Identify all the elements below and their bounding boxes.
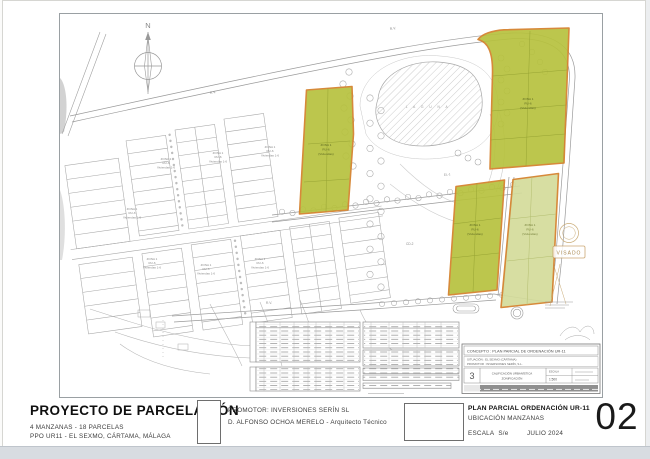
zona-label: ZONA 1RU-6Viviendas 1-6	[143, 257, 161, 269]
pond-label: L A G U N A	[406, 105, 450, 109]
scale-row: ESCALA S/e	[468, 430, 509, 437]
parcel2-label: ZONA 1	[522, 97, 533, 101]
inner-title-block: CONCEPTO : PLAN PARCIAL DE ORDENACIÓN UR…	[462, 326, 600, 393]
visado-label: VISADO	[557, 251, 582, 257]
itb-promotor: PROMOTOR : INVERSIONES SERÍN, S.L.	[467, 362, 523, 366]
parcel3-label: ZONA 1	[469, 223, 480, 227]
equipment-shapes	[453, 304, 479, 313]
zona-label: ZONA 1RU-6Viviendas 1-6	[197, 263, 215, 275]
page-edge-bottom	[0, 446, 650, 459]
north-compass: N	[135, 21, 162, 94]
scale-label: ESCALA	[468, 430, 494, 437]
rv-label-1: R.V.	[209, 90, 216, 95]
zona-label: ZONA 1RU-6Viviendas 1-6	[251, 257, 269, 269]
parcel4-label: ZONA 1	[524, 223, 535, 227]
rv-label-2: R.V.	[390, 26, 397, 31]
rv-label-3: R.V.	[266, 301, 273, 305]
itb-title2: ZONIFICACIÓN	[502, 376, 523, 381]
parcel-table-a	[250, 322, 360, 391]
sheet-number: 02	[591, 396, 643, 438]
zona-label: ZONA 1RU-6Viviendas 1-6	[209, 151, 227, 163]
scale-value: S/e	[498, 430, 508, 437]
zona-label: ZONA 1RU-6Viviendas 1-6	[261, 145, 279, 157]
parcel-table-b	[363, 322, 459, 394]
project-subtitle-2: PPO UR11 - EL SEXMO, CÁRTAMA, MÁLAGA	[30, 433, 171, 440]
map-frame: L A G U N A ZONA 1RU-6(Viviendas) ZONA 1…	[59, 13, 603, 398]
left-edge-terrain	[60, 32, 106, 260]
itb-plano-num: 3	[469, 371, 474, 381]
parcel1-label: ZONA 1	[320, 143, 331, 147]
itb-situacion: SITUACIÓN : EL SEXMO (CÁRTAMA)	[467, 356, 516, 361]
el-label: EL-1	[444, 172, 451, 177]
logo-box-right	[404, 403, 464, 441]
drawing-subtitle: UBICACIÓN MANZANAS	[468, 415, 544, 422]
itb-title1: CALIFICACIÓN URBANÍSTICA	[492, 371, 533, 376]
drawing-title: PLAN PARCIAL ORDENACIÓN UR-11	[468, 405, 590, 412]
promoter-line-2: D. ALFONSO OCHOA MERELO - Arquitecto Téc…	[228, 419, 387, 426]
zona-label: ZONA 1RU-6Viviendas 1-6	[123, 207, 141, 219]
parcel-plan-drawing: L A G U N A ZONA 1RU-6(Viviendas) ZONA 1…	[60, 14, 602, 397]
pond-water	[376, 62, 482, 146]
logo-box-left	[197, 400, 221, 444]
promoter-line-1: PROMOTOR: INVERSIONES SERÍN SL	[228, 407, 349, 414]
drawing-date: JULIO 2024	[527, 430, 563, 437]
cd-label: CD-2	[406, 242, 414, 246]
itb-concepto: CONCEPTO : PLAN PARCIAL DE ORDENACIÓN UR…	[467, 349, 566, 354]
project-subtitle-1: 4 MANZANAS - 18 PARCELAS	[30, 424, 124, 431]
itb-escala-value: 1:500	[549, 378, 557, 382]
north-label: N	[145, 21, 150, 30]
itb-escala-label: ESCALA	[549, 371, 559, 374]
plan-sheet: L A G U N A ZONA 1RU-6(Viviendas) ZONA 1…	[0, 0, 650, 459]
page-edge-right	[646, 0, 650, 447]
